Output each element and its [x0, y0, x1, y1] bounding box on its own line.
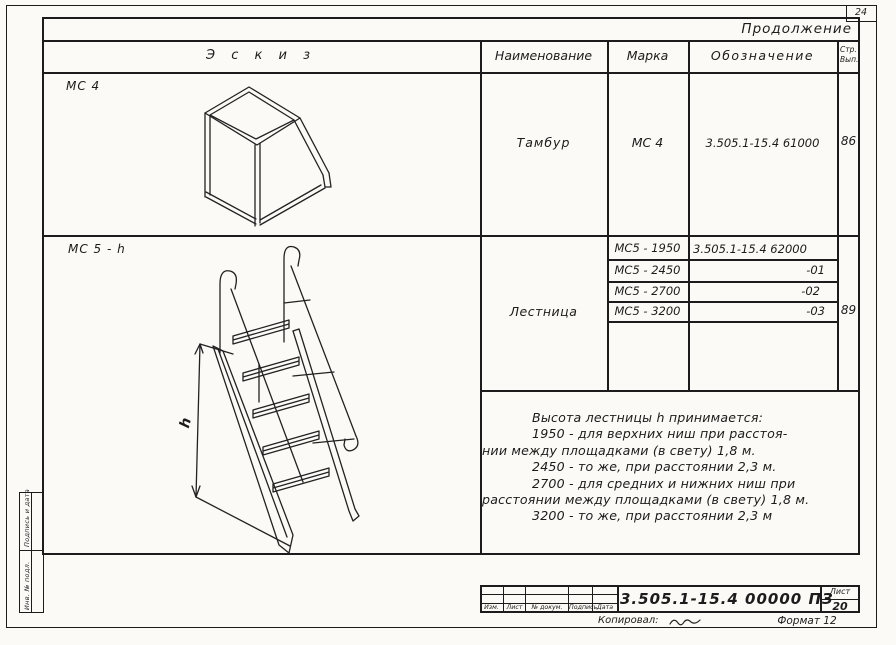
tambour-sketch: [152, 78, 402, 233]
header-sketch: Э с к и з: [42, 48, 480, 63]
note-separator-line: [480, 390, 860, 392]
subrow-line-3: [607, 301, 837, 303]
col-line-name: [607, 40, 609, 390]
header-page-line1: Стр.: [840, 45, 857, 54]
row2-designation-2: -02: [690, 284, 820, 298]
row2-mark-1: МС5 - 2450: [609, 263, 686, 277]
note-line: 2450 - то же, при расстоянии 2,3 м.: [482, 459, 854, 475]
row1-name: Тамбур: [482, 135, 605, 150]
revision-label-list: Лист: [504, 604, 525, 611]
drawing-sheet: 24 Продолжение Э с к и з Наименование Ма…: [0, 0, 896, 645]
note-line: Высота лестницы h принимается:: [482, 410, 854, 426]
side-stamp-top-label: Подпись и дата: [23, 489, 31, 547]
side-stamp-hline: [19, 550, 44, 551]
side-stamp-bottom-label: Инв. № подл.: [23, 562, 31, 610]
titleblock-vline-5: [617, 585, 619, 613]
copied-label: Копировал:: [598, 615, 659, 626]
col-line-designation: [837, 40, 839, 390]
row-divider-line: [42, 235, 860, 237]
col-line-mark: [688, 40, 690, 390]
revision-label-docnum: № докум.: [526, 604, 568, 611]
header-top-line: [42, 40, 860, 42]
ladder-sketch: [140, 240, 400, 560]
row2-mark-0: МС5 - 1950: [609, 241, 686, 255]
header-bottom-line: [42, 72, 860, 74]
header-name: Наименование: [482, 48, 605, 63]
row2-sketch-label: МС 5 - h: [68, 242, 126, 256]
titleblock-hline-1: [480, 594, 617, 595]
sheet-label: Лист: [820, 587, 860, 596]
note-line: 3200 - то же, при расстоянии 2,3 м: [482, 508, 854, 524]
row2-designation-3: -03: [690, 304, 825, 318]
row2-mark-2: МС5 - 2700: [609, 284, 686, 298]
row2-designation-0: 3.505.1-15.4 62000: [693, 242, 807, 256]
revision-label-data: Дата: [593, 604, 617, 611]
subrow-line-2: [607, 281, 837, 283]
header-page-line2: Вып.: [840, 55, 858, 64]
note-line: нии между площадками (в свету) 1,8 м.: [482, 443, 854, 459]
row1-sketch-label: МС 4: [66, 79, 100, 93]
subrow-line-4: [607, 321, 837, 323]
note-line: 1950 - для верхних ниш при расстоя-: [482, 426, 854, 442]
subrow-line-1: [607, 259, 837, 261]
format-note: Формат 12: [752, 615, 862, 627]
revision-label-podpis: Подпись: [569, 604, 592, 611]
row1-mark: МС 4: [609, 135, 686, 150]
header-designation: Обозначение: [690, 48, 835, 63]
side-stamp-vline: [31, 492, 32, 613]
note-line: 2700 - для средних и нижних ниш при: [482, 476, 854, 492]
row1-designation: 3.505.1-15.4 61000: [690, 136, 835, 150]
signature: [668, 615, 702, 628]
note-line: расстоянии между площадками (в свету) 1,…: [482, 492, 854, 508]
doc-designation: 3.505.1-15.4 00000 ПЗ: [620, 590, 818, 608]
note-block: Высота лестницы h принимается: 1950 - дл…: [482, 410, 854, 525]
row2-mark-3: МС5 - 3200: [609, 304, 686, 318]
header-mark: Марка: [609, 48, 686, 63]
row2-name: Лестница: [482, 304, 605, 319]
revision-label-izm: Изм.: [480, 604, 503, 611]
row2-page: 89: [838, 303, 859, 317]
continuation-label: Продолжение: [600, 21, 852, 37]
sheet-number: 20: [820, 600, 860, 613]
row1-page: 86: [838, 134, 859, 148]
row2-designation-1: -01: [690, 263, 825, 277]
